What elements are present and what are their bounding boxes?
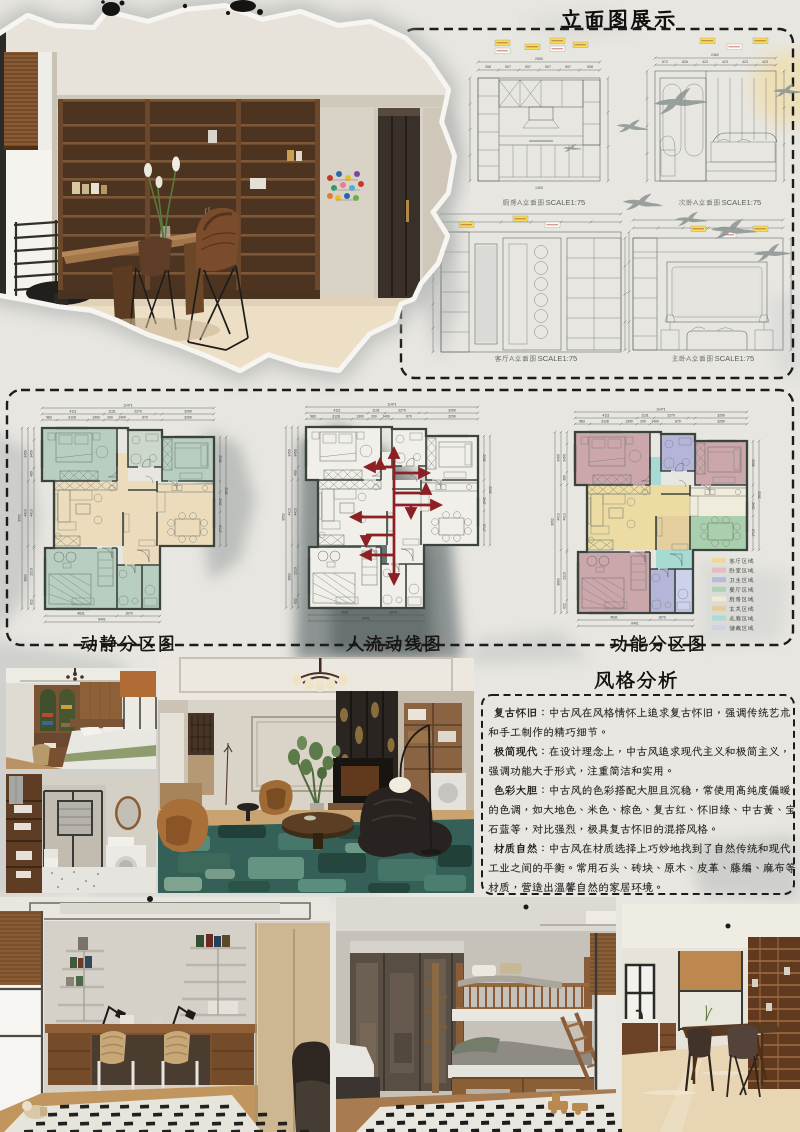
svg-text:597: 597 — [565, 65, 571, 69]
svg-text:597: 597 — [505, 65, 511, 69]
svg-text:598: 598 — [587, 65, 593, 69]
svg-text:SCALE1:75: SCALE1:75 — [538, 354, 578, 363]
svg-text:626: 626 — [682, 60, 688, 64]
svg-text:672: 672 — [662, 60, 668, 64]
svg-text:423: 423 — [722, 60, 728, 64]
svg-text:SCALE1:75: SCALE1:75 — [546, 198, 586, 207]
svg-text:423: 423 — [762, 60, 768, 64]
svg-text:SCALE1:75: SCALE1:75 — [722, 198, 762, 207]
svg-text:SCALE1:75: SCALE1:75 — [715, 354, 755, 363]
svg-text:2462: 2462 — [711, 53, 719, 57]
svg-text:2550: 2550 — [535, 57, 543, 61]
svg-text:398: 398 — [485, 65, 491, 69]
svg-text:423: 423 — [742, 60, 748, 64]
svg-text:423: 423 — [702, 60, 708, 64]
svg-text:597: 597 — [525, 65, 531, 69]
svg-text:597: 597 — [545, 65, 551, 69]
svg-text:1300: 1300 — [535, 186, 543, 190]
